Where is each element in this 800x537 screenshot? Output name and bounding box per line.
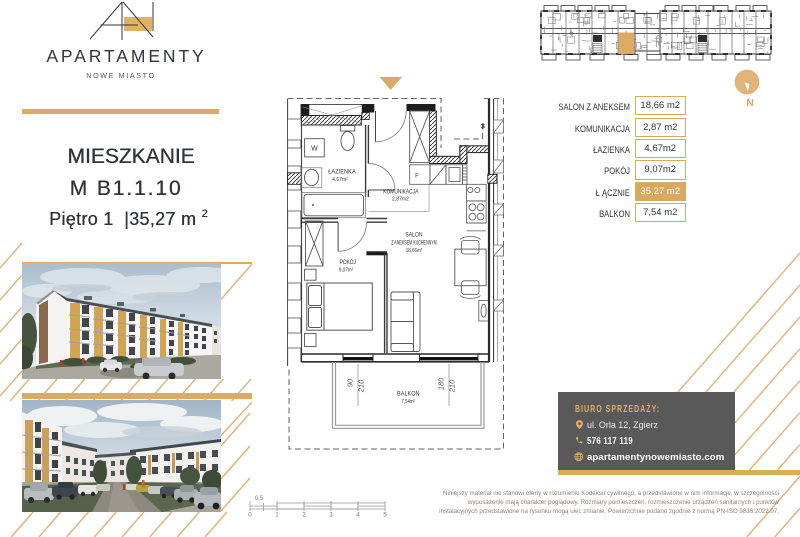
svg-text:1: 1	[275, 512, 279, 519]
svg-text:210: 210	[357, 379, 366, 393]
svg-text:N: N	[746, 97, 754, 109]
svg-text:4,67m²: 4,67m²	[332, 177, 348, 183]
svg-text:2: 2	[302, 512, 306, 519]
svg-text:4: 4	[356, 512, 360, 519]
svg-text:POKÓJ: POKÓJ	[340, 257, 356, 266]
svg-text:0: 0	[248, 512, 252, 519]
svg-text:BALKON: BALKON	[397, 391, 420, 398]
svg-text:Z ANEKSEM KUCHENNYM: Z ANEKSEM KUCHENNYM	[391, 239, 437, 246]
svg-text:0,5: 0,5	[255, 495, 264, 502]
svg-text:3: 3	[481, 124, 485, 131]
svg-text:3: 3	[329, 512, 333, 519]
svg-text:W: W	[311, 146, 318, 153]
svg-text:F: F	[415, 174, 419, 180]
svg-text:7,54m²: 7,54m²	[402, 399, 416, 405]
svg-text:180: 180	[437, 377, 446, 390]
svg-text:210: 210	[448, 379, 457, 393]
svg-text:ŁAZIENKA: ŁAZIENKA	[328, 169, 356, 176]
svg-text:KOMUNIKACJA: KOMUNIKACJA	[383, 189, 419, 196]
svg-text:90: 90	[346, 378, 355, 387]
svg-text:18,66m²: 18,66m²	[406, 248, 423, 254]
svg-text:2,87m2: 2,87m2	[392, 197, 409, 203]
svg-text:SALON: SALON	[405, 232, 423, 239]
svg-text:9,07m²: 9,07m²	[339, 267, 353, 273]
